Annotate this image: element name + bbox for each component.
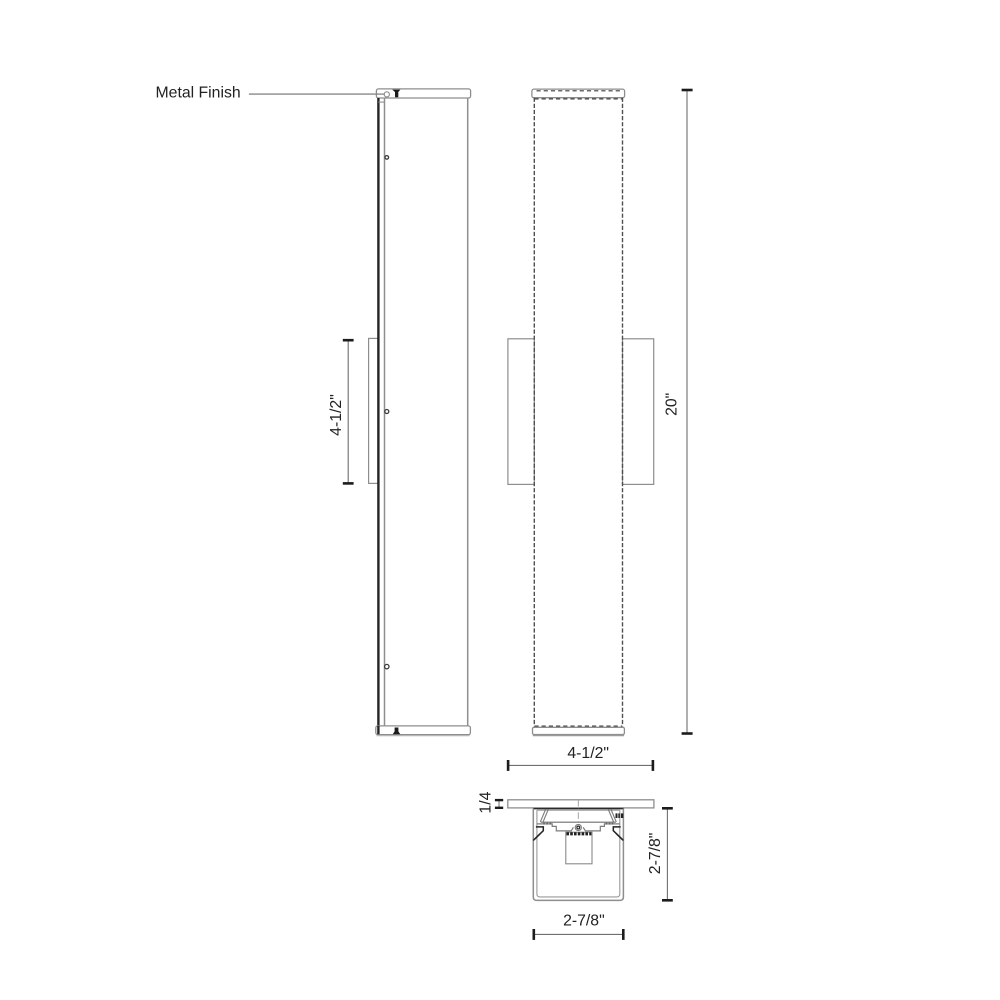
svg-text:2-7/8": 2-7/8" bbox=[647, 833, 664, 875]
svg-text:Metal Finish: Metal Finish bbox=[156, 85, 241, 102]
svg-text:1/4: 1/4 bbox=[478, 791, 495, 813]
svg-text:4-1/2": 4-1/2" bbox=[328, 394, 345, 436]
svg-text:4-1/2": 4-1/2" bbox=[567, 745, 609, 762]
svg-text:2-7/8": 2-7/8" bbox=[563, 912, 605, 929]
svg-text:20": 20" bbox=[663, 393, 680, 416]
